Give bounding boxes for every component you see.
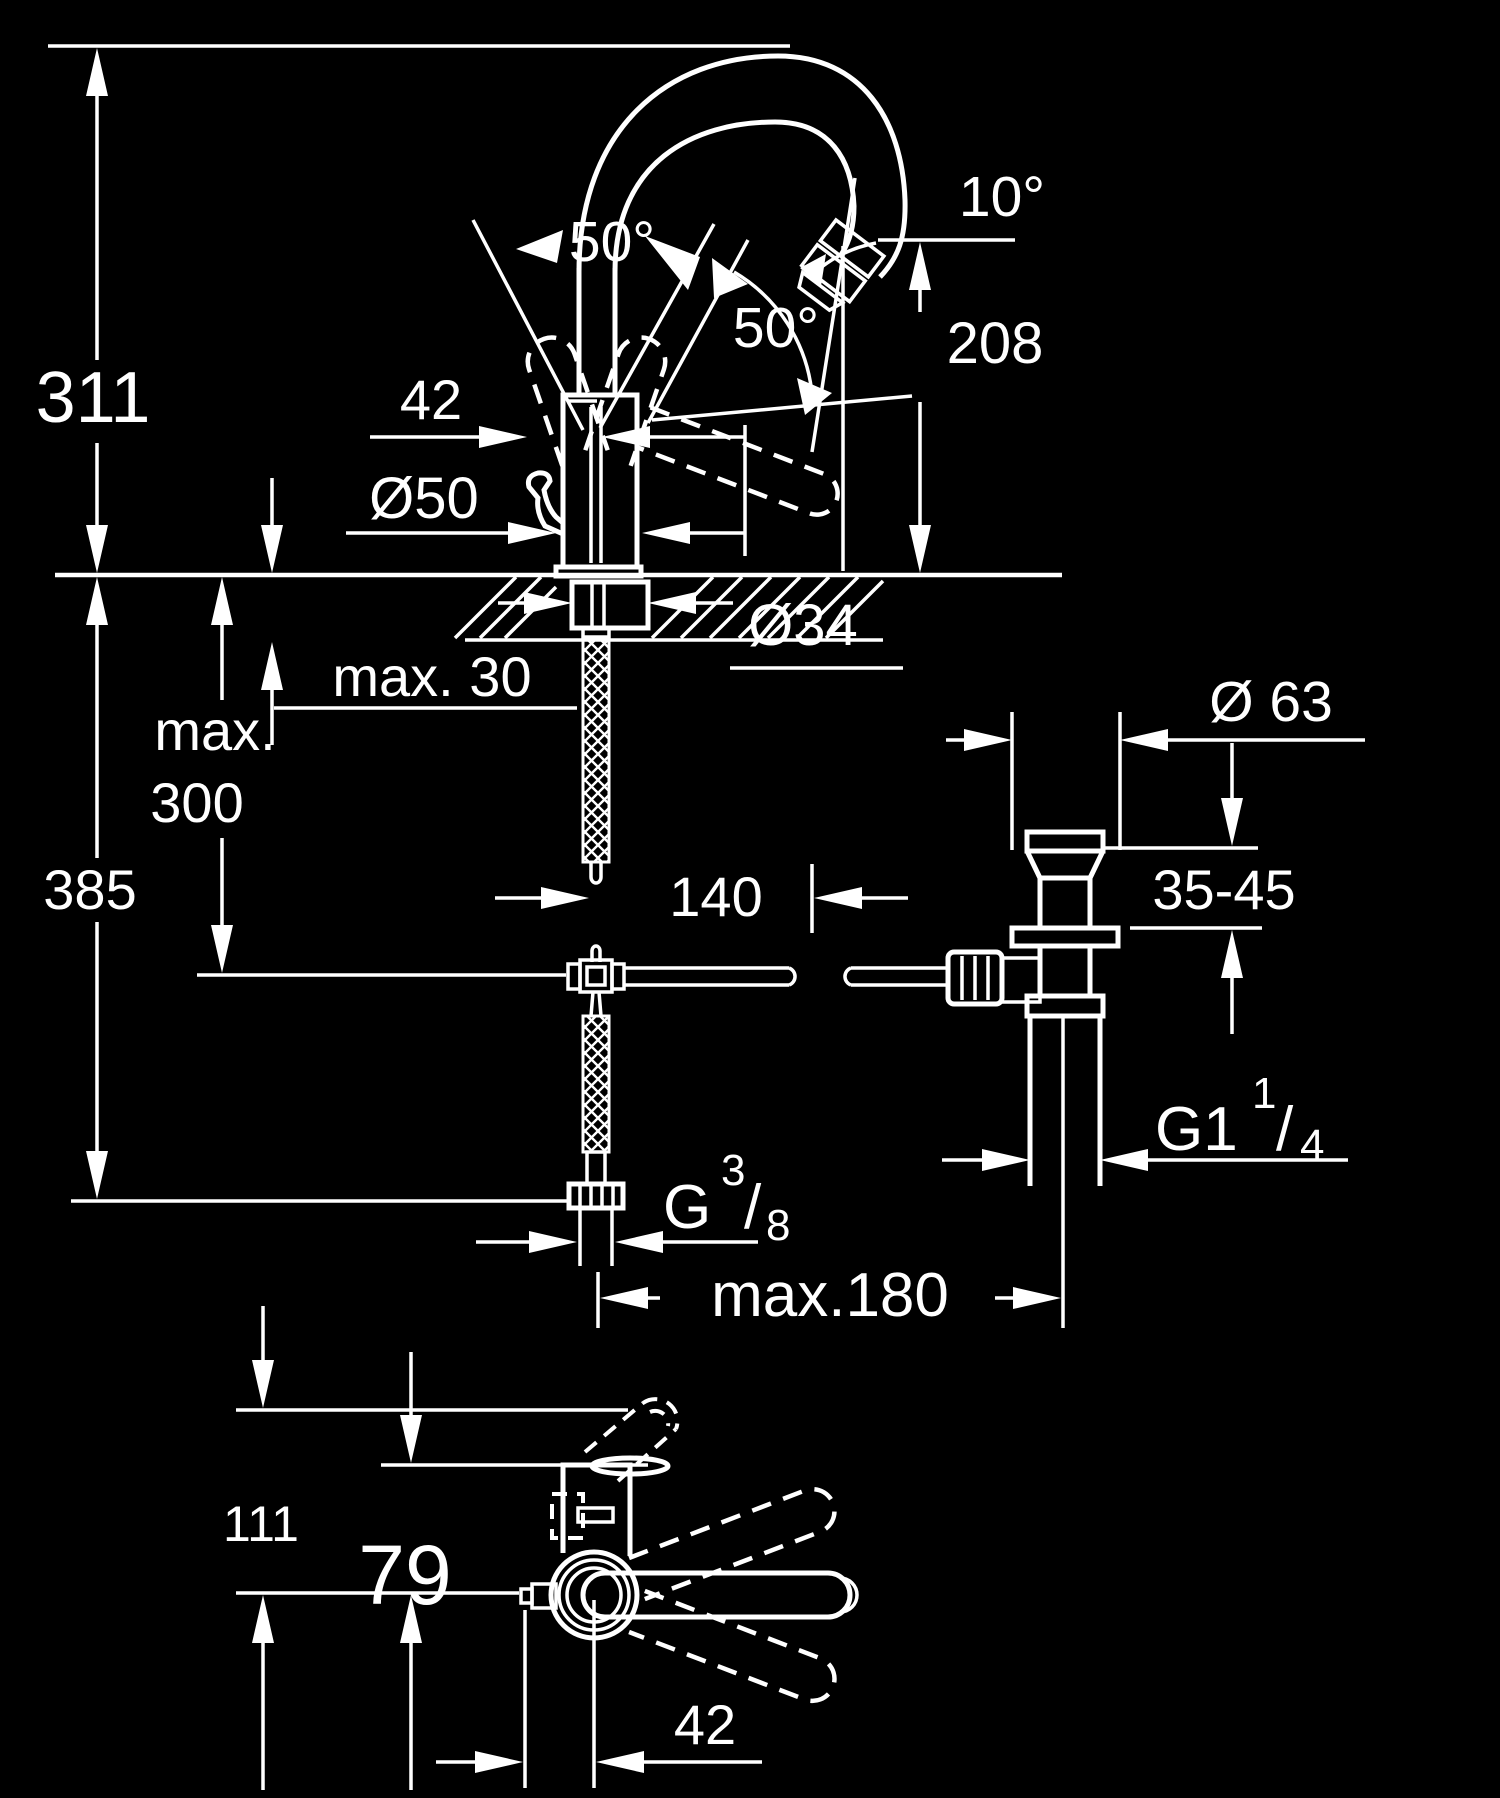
label-111: 111 — [223, 1496, 299, 1552]
pop-up-horizontal-rod — [624, 968, 947, 985]
label-140: 140 — [669, 865, 762, 928]
plan-view: 111 79 — [223, 1306, 857, 1790]
handle-tilt-right — [585, 331, 671, 466]
dim-plan-111: 111 — [223, 1306, 299, 1790]
label-79: 79 — [358, 1528, 451, 1622]
label-g114-denominator: 4 — [1300, 1121, 1324, 1170]
dim-plan-79: 79 — [358, 1352, 451, 1790]
waste-plug-cap — [1027, 832, 1103, 851]
label-10deg: 10° — [959, 165, 1045, 229]
dim-shank-diameter-34: Ø34 — [498, 592, 903, 668]
rod-end-upper — [591, 862, 601, 883]
label-g38-denominator: 8 — [766, 1201, 790, 1250]
label-g114-slash: / — [1276, 1095, 1294, 1164]
label-o34: Ø34 — [748, 593, 858, 658]
label-300: 300 — [150, 771, 243, 834]
label-208: 208 — [947, 311, 1044, 376]
label-max: max. — [154, 699, 275, 762]
waste-lower-body — [1040, 946, 1090, 996]
pop-up-pull-rod-knob — [528, 473, 563, 534]
g38-union-nut — [569, 1184, 623, 1208]
label-g114-numerator: 1 — [1252, 1069, 1276, 1118]
label-o50: Ø50 — [369, 466, 479, 531]
label-50deg-top: 50° — [569, 210, 655, 274]
plan-handle-lower-dashed — [629, 1591, 841, 1707]
label-42-plan: 42 — [674, 1693, 736, 1756]
tee-plate-left — [568, 964, 580, 989]
label-max180: max.180 — [711, 1261, 949, 1330]
handle-open-position — [635, 407, 843, 520]
dim-basin-thickness-35-45: 35-45 — [1103, 743, 1296, 1034]
dim-rod-offset-140: 140 — [495, 864, 908, 933]
dim-drain-flange-63: Ø 63 — [946, 670, 1365, 850]
label-g38-slash: / — [744, 1173, 762, 1242]
plan-handle-upper-dashed — [629, 1483, 841, 1599]
dim-spout-height-208: 208 — [909, 242, 1043, 573]
dim-total-height-311: 311 385 — [36, 48, 569, 1201]
label-g114-main: G1 — [1155, 1095, 1238, 1164]
tee-taper — [591, 992, 601, 1016]
plan-handle-lever — [583, 1573, 850, 1617]
label-g38-numerator: 3 — [721, 1146, 745, 1195]
dim-max-300: max. 300 — [150, 577, 566, 975]
technical-drawing: 311 385 max. 300 max. 30 Ø50 42 — [0, 0, 1500, 1798]
drain-assembly — [948, 832, 1118, 1328]
label-g38-main: G — [663, 1173, 711, 1242]
dim-max-180: max.180 — [598, 1261, 1061, 1330]
flexible-hose-upper — [583, 637, 609, 862]
hose-ferrule — [587, 1152, 605, 1184]
label-311: 311 — [36, 358, 151, 438]
label-42-side: 42 — [400, 368, 462, 431]
tee-center — [587, 967, 605, 985]
dim-drain-thread-g114: G1 1 / 4 — [942, 1069, 1348, 1171]
under-deck-assembly — [568, 582, 648, 1266]
faucet-plan — [521, 1399, 857, 1707]
label-o63: Ø 63 — [1209, 670, 1333, 734]
drawing-page: 311 385 max. 300 max. 30 Ø50 42 — [0, 0, 1500, 1798]
rod-segment-left — [624, 968, 795, 985]
pop-up-tee-connector — [580, 960, 612, 992]
label-max30: max. 30 — [332, 645, 531, 708]
base-flange — [556, 567, 641, 576]
side-view: 311 385 max. 300 max. 30 Ø50 42 — [36, 46, 1365, 1330]
mounting-nut — [572, 582, 648, 628]
waste-upper-body — [1040, 878, 1090, 928]
flexible-hose-lower — [583, 1016, 609, 1152]
label-50deg-front: 50° — [733, 296, 819, 360]
rod-segment-right — [845, 968, 947, 985]
waste-seal-flange — [1012, 928, 1118, 946]
label-385: 385 — [43, 858, 136, 921]
label-35-45: 35-45 — [1152, 858, 1295, 921]
waste-neck — [1027, 851, 1103, 878]
tee-plate-right — [612, 964, 624, 989]
plan-spout-tip-inner — [650, 1411, 668, 1426]
